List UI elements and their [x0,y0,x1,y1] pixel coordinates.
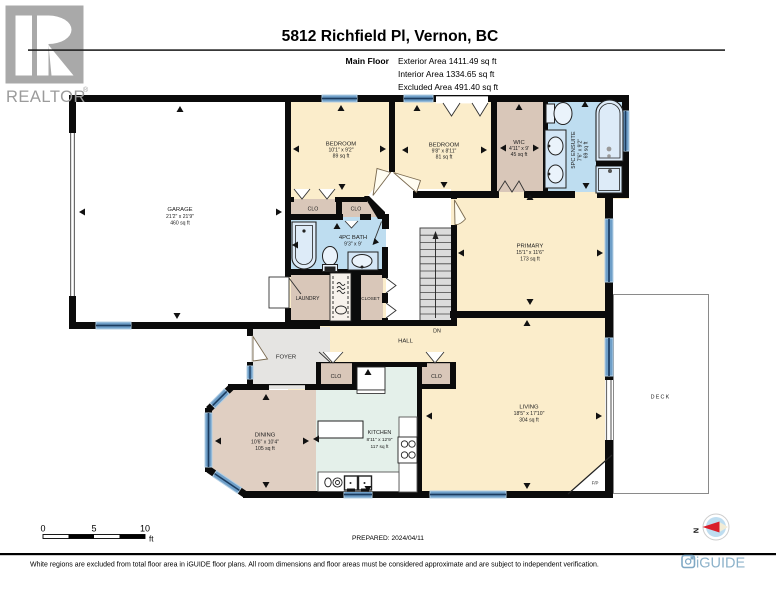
svg-text:10: 10 [140,524,150,534]
svg-text:5PC ENSUITE: 5PC ENSUITE [571,131,577,169]
svg-text:0: 0 [40,524,45,534]
svg-text:®: ® [83,86,89,94]
svg-text:9'3" x 9': 9'3" x 9' [344,242,362,248]
svg-text:CLOSET: CLOSET [361,296,380,301]
svg-text:89 sq ft: 89 sq ft [333,154,350,160]
svg-text:DN: DN [433,329,441,335]
svg-text:GARAGE: GARAGE [167,207,192,213]
svg-text:173 sq ft: 173 sq ft [520,257,540,263]
svg-text:LIVING: LIVING [519,405,539,411]
svg-text:8'11" x 12'9": 8'11" x 12'9" [367,437,393,443]
svg-text:10'6" x 10'4": 10'6" x 10'4" [251,440,279,446]
svg-text:4PC BATH: 4PC BATH [339,235,367,241]
svg-text:ft: ft [149,535,154,544]
svg-text:F/P: F/P [592,481,599,486]
svg-text:18'5" x 17'10": 18'5" x 17'10" [514,411,545,417]
svg-text:Excluded Area 491.40 sq ft: Excluded Area 491.40 sq ft [398,82,499,92]
svg-text:PRIMARY: PRIMARY [517,244,544,250]
svg-text:PREPARED: 2024/04/11: PREPARED: 2024/04/11 [352,535,424,542]
svg-text:105 sq ft: 105 sq ft [255,446,275,452]
svg-text:DINING: DINING [255,433,276,439]
svg-text:Interior Area 1334.65 sq ft: Interior Area 1334.65 sq ft [398,69,495,79]
svg-text:REALTOR: REALTOR [6,88,86,106]
svg-text:15'1" x 11'6": 15'1" x 11'6" [516,250,544,256]
svg-text:LAUNDRY: LAUNDRY [296,296,320,302]
svg-text:21'2" x 21'9": 21'2" x 21'9" [166,214,194,220]
svg-text:CLO: CLO [331,374,342,380]
svg-text:5: 5 [91,524,96,534]
svg-text:460 sq ft: 460 sq ft [170,221,190,227]
svg-text:FOYER: FOYER [276,355,296,361]
svg-text:45 sq ft: 45 sq ft [511,152,528,158]
svg-text:DECK: DECK [651,395,671,401]
svg-text:KITCHEN: KITCHEN [368,430,392,436]
svg-text:5812 Richfield Pl, Vernon, BC: 5812 Richfield Pl, Vernon, BC [282,28,499,45]
svg-text:iGUIDE: iGUIDE [696,556,745,572]
svg-text:Main Floor: Main Floor [346,56,390,66]
svg-text:81 sq ft: 81 sq ft [436,155,453,161]
svg-text:CLO: CLO [308,207,319,213]
svg-text:White regions are excluded fro: White regions are excluded from total fl… [30,562,599,569]
svg-text:CLO: CLO [351,207,362,213]
svg-text:Exterior Area 1411.49 sq ft: Exterior Area 1411.49 sq ft [398,56,497,66]
svg-text:69 sq ft: 69 sq ft [584,141,590,158]
svg-text:CLO: CLO [431,374,442,380]
svg-text:117 sq ft: 117 sq ft [370,444,389,450]
svg-text:N: N [692,528,701,533]
svg-text:HALL: HALL [398,339,413,345]
svg-text:304 sq ft: 304 sq ft [519,418,539,424]
